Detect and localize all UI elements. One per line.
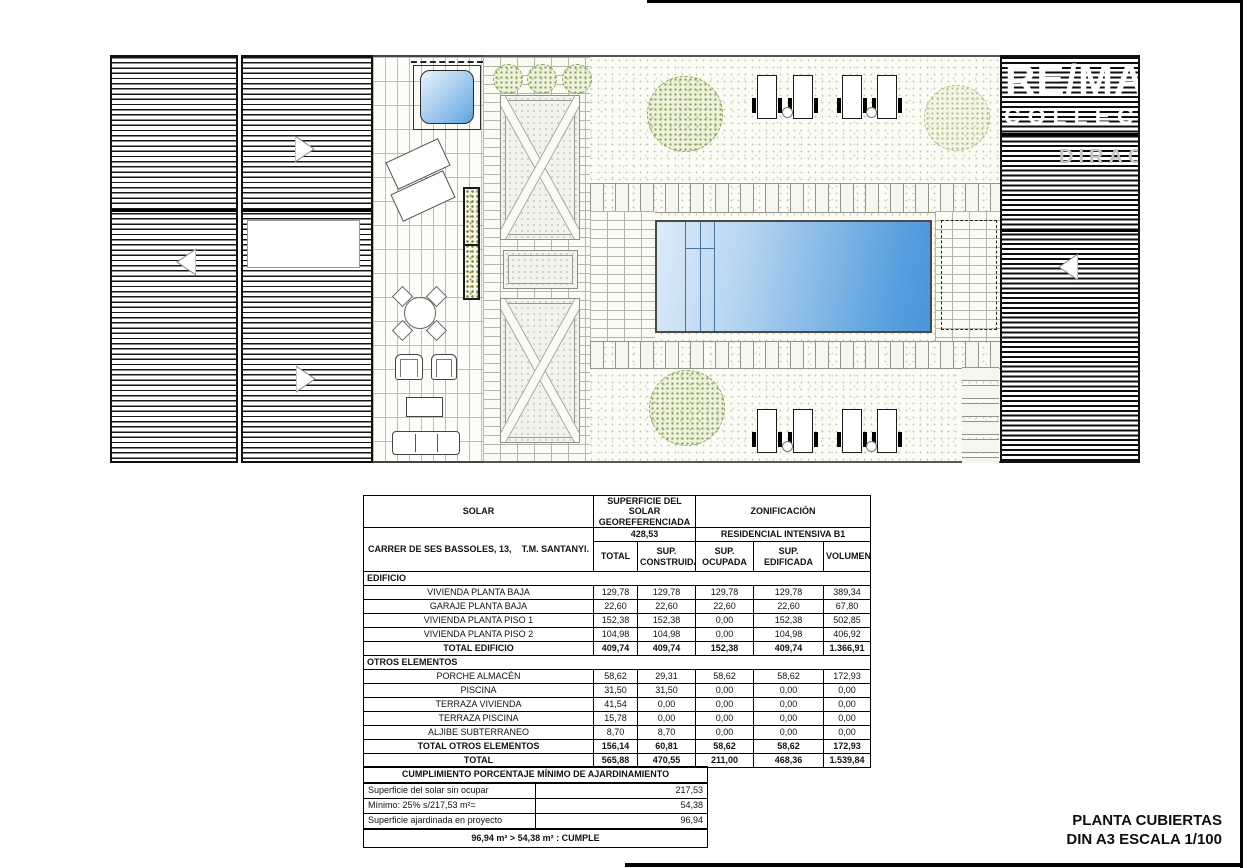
watermark-underline xyxy=(1002,133,1138,136)
side-table xyxy=(866,107,877,118)
row-label: Superficie ajardinada en proyecto xyxy=(364,814,536,830)
row-value: 54,38 xyxy=(536,799,708,814)
pool-deck-brick xyxy=(590,211,655,341)
address-municipality: T.M. SANTANYI. xyxy=(522,544,589,554)
pool-steps xyxy=(685,222,715,331)
row-label: TERRAZA VIVIENDA xyxy=(364,698,594,712)
section-label: OTROS ELEMENTOS xyxy=(364,656,871,670)
section-row: EDIFICIO xyxy=(364,572,871,586)
row-label: TOTAL EDIFICIO xyxy=(364,642,594,656)
row-label: TERRAZA PISCINA xyxy=(364,712,594,726)
table-row: GARAJE PLANTA BAJA 22,6022,60 22,6022,60… xyxy=(364,600,871,614)
landscaping-title: CUMPLIMIENTO PORCENTAJE MÍNIMO DE AJARDI… xyxy=(364,767,708,784)
col-header-superficie: SUPERFICIE DEL SOLAR GEOREFERENCIADA xyxy=(594,496,696,528)
col-header-ocupada: SUP. OCUPADA xyxy=(696,542,754,572)
address-cell: CARRER DE SES BASSOLES, 13, T.M. SANTANY… xyxy=(364,528,594,572)
superficie-value: 428,53 xyxy=(594,528,696,542)
sunbed xyxy=(842,409,862,453)
roof-skylight xyxy=(247,220,360,268)
table-row: VIVIENDA PLANTA PISO 2 104,98104,98 0,00… xyxy=(364,628,871,642)
boundary-dashed-line xyxy=(411,61,483,63)
roof-panel-middle xyxy=(241,55,373,463)
sunbed xyxy=(877,409,897,453)
tree xyxy=(924,85,990,151)
roof-plan-drawing: RE/MA COLLECT DIRAC xyxy=(110,55,1140,465)
roof-panel-right: RE/MA COLLECT DIRAC xyxy=(1000,55,1140,463)
gravel-bed-crossed xyxy=(500,95,580,240)
sunbed xyxy=(757,75,777,119)
row-label: GARAJE PLANTA BAJA xyxy=(364,600,594,614)
swimming-pool xyxy=(655,220,932,333)
bush xyxy=(493,64,523,94)
planter-strip xyxy=(463,187,480,300)
sunbed xyxy=(842,75,862,119)
table-row: Mínimo: 25% s/217,53 m²= 54,38 xyxy=(364,799,708,814)
col-header-volumen: VOLUMEN xyxy=(824,542,871,572)
col-header-edificada: SUP. EDIFICADA xyxy=(754,542,824,572)
total-otros-row: TOTAL OTROS ELEMENTOS 156,1460,81 58,625… xyxy=(364,740,871,754)
row-value: 96,94 xyxy=(536,814,708,830)
row-label: PISCINA xyxy=(364,684,594,698)
section-row: OTROS ELEMENTOS xyxy=(364,656,871,670)
row-label: VIVIENDA PLANTA PISO 1 xyxy=(364,614,594,628)
landscaping-table: CUMPLIMIENTO PORCENTAJE MÍNIMO DE AJARDI… xyxy=(363,766,708,848)
row-value: 217,53 xyxy=(536,783,708,799)
table-row: VIVIENDA PLANTA PISO 1 152,38152,38 0,00… xyxy=(364,614,871,628)
terrace-paving xyxy=(373,55,483,463)
slope-arrow-left-icon xyxy=(176,248,196,276)
roof-ridge-line xyxy=(1002,229,1138,232)
garden-area xyxy=(483,55,1000,463)
row-label: ALJIBE SUBTERRANEO xyxy=(364,726,594,740)
tree xyxy=(649,370,725,446)
slope-arrow-right-icon xyxy=(295,135,315,163)
watermark-extra: DIRAC xyxy=(1059,147,1140,167)
construida-line2: CONSTRUIDA xyxy=(640,557,693,567)
watermark-collection: COLLECT xyxy=(1004,105,1140,128)
side-table xyxy=(782,441,793,452)
side-table xyxy=(782,107,793,118)
sunbed xyxy=(877,75,897,119)
address-street: CARRER DE SES BASSOLES, 13, xyxy=(368,544,512,554)
table-row: TERRAZA PISCINA 15,780,00 0,000,00 0,00 xyxy=(364,712,871,726)
gravel-bed-crossed xyxy=(500,298,580,443)
conclusion-text: 96,94 m² > 54,38 m² : CUMPLE xyxy=(364,829,708,848)
table-row: Superficie del solar sin ocupar 217,53 xyxy=(364,783,708,799)
col-header-zonificacion: ZONIFICACIÓN xyxy=(696,496,871,528)
tree xyxy=(647,76,723,152)
watermark-brand: RE/MA xyxy=(1005,59,1140,101)
sheet-border-bottom xyxy=(625,863,1243,867)
zonificacion-value: RESIDENCIAL INTENSIVA B1 xyxy=(696,528,871,542)
side-table xyxy=(866,441,877,452)
table-row: VIVIENDA PLANTA BAJA 129,78129,78 129,78… xyxy=(364,586,871,600)
sunbed xyxy=(793,409,813,453)
roof-panel-left xyxy=(110,55,238,463)
sheet-border-top xyxy=(647,0,1243,3)
armchair xyxy=(431,354,457,380)
jacuzzi xyxy=(420,70,474,124)
total-edificio-row: TOTAL EDIFICIO 409,74409,74 152,38409,74… xyxy=(364,642,871,656)
page-title: PLANTA CUBIERTAS xyxy=(980,811,1222,830)
armchair xyxy=(395,354,423,380)
gravel-bed-small xyxy=(503,250,578,289)
row-label: Mínimo: 25% s/217,53 m²= xyxy=(364,799,536,814)
stepping-stone-band xyxy=(590,341,1000,369)
superficie-line1: SUPERFICIE DEL SOLAR xyxy=(596,496,693,517)
slope-arrow-right-icon xyxy=(296,365,316,393)
dining-table xyxy=(404,297,436,329)
sheet-border-right xyxy=(1240,0,1243,868)
sunbed xyxy=(793,75,813,119)
roof-ridge-line xyxy=(243,209,371,212)
landscaping-header-row: CUMPLIMIENTO PORCENTAJE MÍNIMO DE AJARDI… xyxy=(364,767,708,784)
row-label: TOTAL OTROS ELEMENTOS xyxy=(364,740,594,754)
col-header-total: TOTAL xyxy=(594,542,638,572)
table-row: Superficie ajardinada en proyecto 96,94 xyxy=(364,814,708,830)
roof-ridge-line xyxy=(112,209,236,212)
stepping-stone-band xyxy=(590,183,1000,213)
construida-line1: SUP. xyxy=(640,546,693,556)
bush xyxy=(562,64,592,94)
row-label: VIVIENDA PLANTA PISO 2 xyxy=(364,628,594,642)
plan-sheet: RE/MA COLLECT DIRAC SOLAR SUPERFICIE DEL… xyxy=(0,0,1247,868)
row-label: PORCHE ALMACÉN xyxy=(364,670,594,684)
conclusion-row: 96,94 m² > 54,38 m² : CUMPLE xyxy=(364,829,708,848)
sunbed xyxy=(757,409,777,453)
surfaces-table: SOLAR SUPERFICIE DEL SOLAR GEOREFERENCIA… xyxy=(363,495,871,768)
row-label: Superficie del solar sin ocupar xyxy=(364,783,536,799)
coffee-table xyxy=(406,397,443,417)
col-header-construida: SUP. CONSTRUIDA xyxy=(638,542,696,572)
table-row: PISCINA 31,5031,50 0,000,00 0,00 xyxy=(364,684,871,698)
bush xyxy=(527,64,557,94)
slope-arrow-left-icon xyxy=(1058,253,1078,281)
sofa xyxy=(392,431,460,455)
scale-note: DIN A3 ESCALA 1/100 xyxy=(980,830,1222,849)
table-row: PORCHE ALMACÉN 58,6229,31 58,6258,62 172… xyxy=(364,670,871,684)
col-header-solar: SOLAR xyxy=(364,496,594,528)
title-block: PLANTA CUBIERTAS DIN A3 ESCALA 1/100 xyxy=(980,811,1222,849)
superficie-line2: GEOREFERENCIADA xyxy=(596,517,693,527)
row-label: VIVIENDA PLANTA BAJA xyxy=(364,586,594,600)
table-row: TERRAZA VIVIENDA 41,540,00 0,000,00 0,00 xyxy=(364,698,871,712)
pergola-dashed-outline xyxy=(941,220,997,330)
stepping-stone-column xyxy=(962,367,999,463)
section-label: EDIFICIO xyxy=(364,572,871,586)
table-row: ALJIBE SUBTERRANEO 8,708,70 0,000,00 0,0… xyxy=(364,726,871,740)
